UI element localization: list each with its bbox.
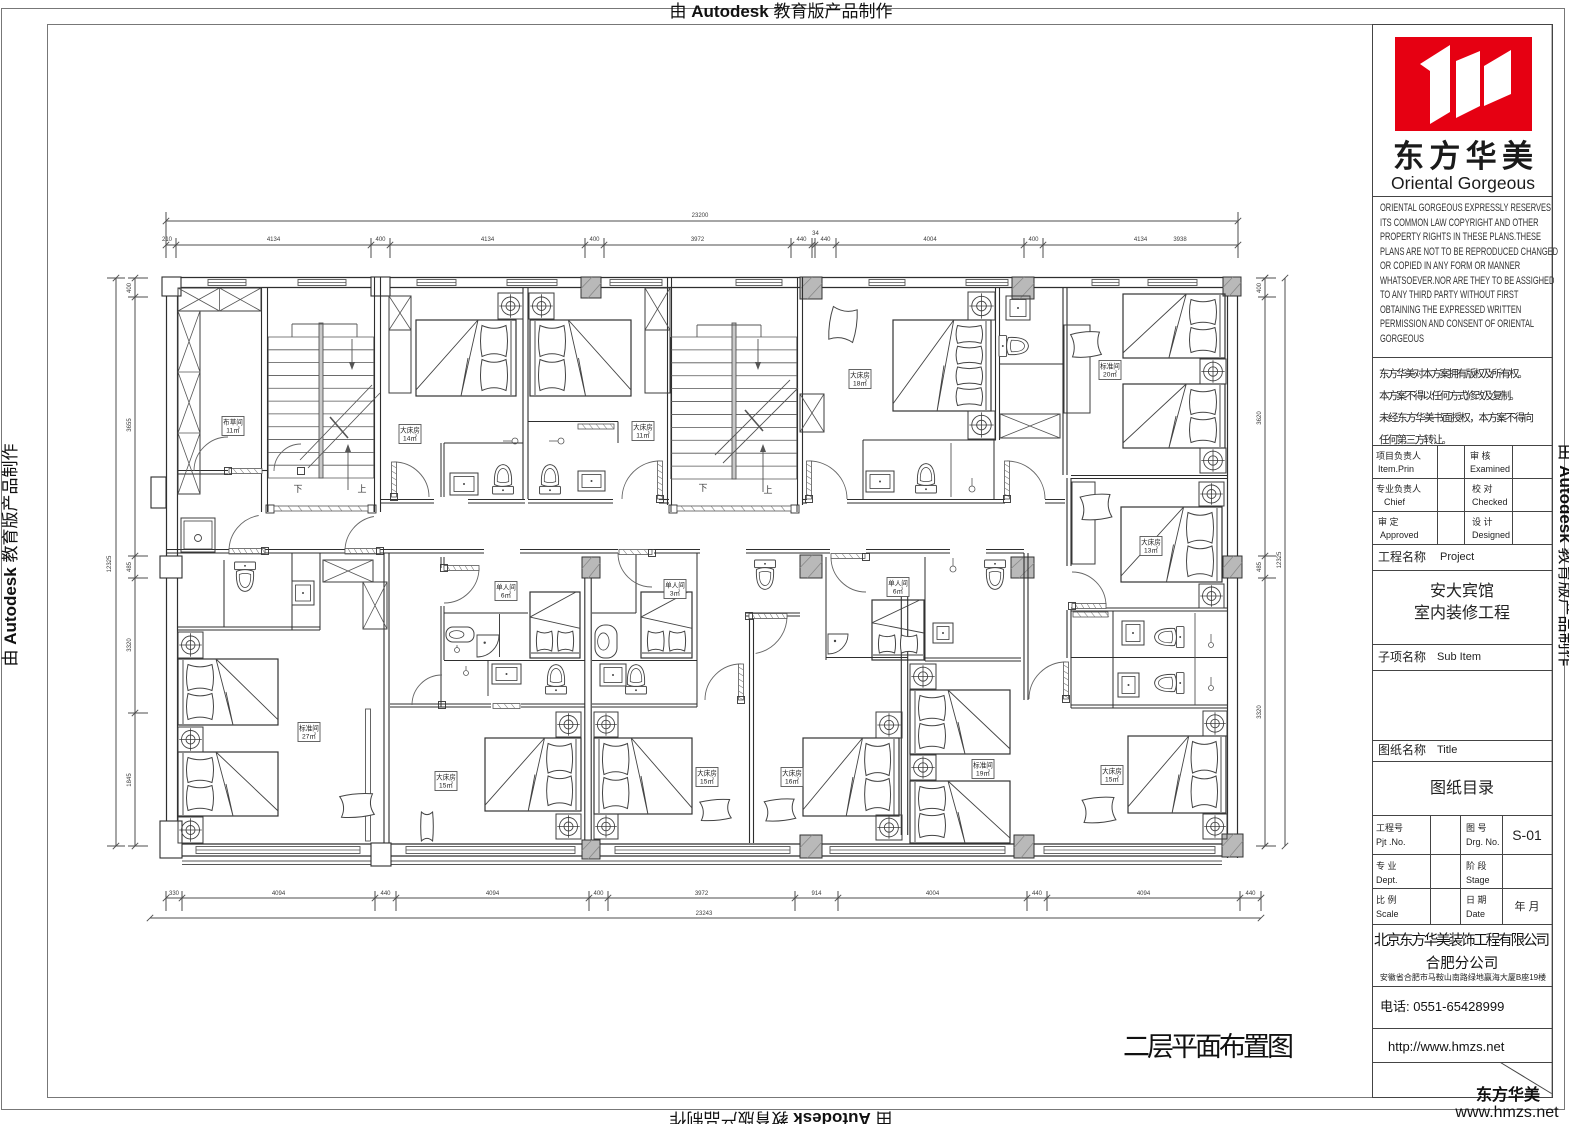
svg-text:440: 440 bbox=[820, 237, 831, 243]
svg-text:ITS COMMON LAW COPYRIGHT AND O: ITS COMMON LAW COPYRIGHT AND OTHER bbox=[1380, 215, 1539, 228]
svg-text:大床房: 大床房 bbox=[697, 769, 717, 778]
svg-text:阶 段: 阶 段 bbox=[1466, 860, 1487, 871]
svg-text:大床房: 大床房 bbox=[400, 426, 420, 435]
svg-text:日 期: 日 期 bbox=[1466, 895, 1487, 905]
svg-text:室内装修工程: 室内装修工程 bbox=[1414, 604, 1510, 622]
svg-text:审 核: 审 核 bbox=[1470, 450, 1491, 461]
svg-text:440: 440 bbox=[380, 891, 391, 897]
svg-text:大床房: 大床房 bbox=[436, 773, 456, 782]
svg-text:400: 400 bbox=[1028, 237, 1039, 243]
svg-text:大床房: 大床房 bbox=[633, 423, 653, 432]
svg-text:18㎡: 18㎡ bbox=[853, 379, 867, 388]
svg-text:Dept.: Dept. bbox=[1376, 875, 1398, 885]
svg-text:由 Autodesk 教育版产品制作: 由 Autodesk 教育版产品制作 bbox=[1, 444, 20, 667]
svg-text:210: 210 bbox=[162, 237, 173, 243]
svg-text:设 计: 设 计 bbox=[1472, 516, 1493, 527]
svg-text:27㎡: 27㎡ bbox=[302, 732, 316, 741]
svg-text:Item.Prin: Item.Prin bbox=[1378, 464, 1414, 474]
svg-text:审 定: 审 定 bbox=[1378, 516, 1399, 527]
svg-text:OBTAINING THE EXPRESSED WRITTE: OBTAINING THE EXPRESSED WRITTEN bbox=[1380, 302, 1521, 315]
svg-text:图纸目录: 图纸目录 bbox=[1430, 779, 1494, 797]
svg-text:Drg. No.: Drg. No. bbox=[1466, 837, 1500, 847]
svg-text:440: 440 bbox=[796, 237, 807, 243]
svg-text:14㎡: 14㎡ bbox=[403, 434, 417, 443]
svg-text:年 月: 年 月 bbox=[1514, 899, 1539, 913]
svg-text:PERMISSION AND CONSENT OF ORIE: PERMISSION AND CONSENT OF ORIENTAL bbox=[1380, 316, 1534, 329]
svg-text:标准间: 标准间 bbox=[973, 761, 993, 770]
svg-text:4134: 4134 bbox=[481, 237, 495, 243]
svg-text:安大宾馆: 安大宾馆 bbox=[1430, 582, 1494, 600]
svg-text:1845: 1845 bbox=[127, 773, 133, 787]
svg-text:400: 400 bbox=[593, 891, 604, 897]
svg-text:Stage: Stage bbox=[1466, 875, 1490, 885]
svg-text:12325: 12325 bbox=[1277, 551, 1283, 568]
svg-text:Oriental Gorgeous: Oriental Gorgeous bbox=[1391, 173, 1535, 193]
svg-text:12325: 12325 bbox=[107, 555, 113, 572]
svg-text:400: 400 bbox=[589, 237, 600, 243]
svg-text:Approved: Approved bbox=[1380, 530, 1419, 540]
svg-text:由 Autodesk 教育版产品制作: 由 Autodesk 教育版产品制作 bbox=[670, 1109, 893, 1124]
svg-text:914: 914 bbox=[811, 891, 822, 897]
svg-text:子项名称: 子项名称 bbox=[1378, 649, 1426, 664]
svg-text:由 Autodesk 教育版产品制作: 由 Autodesk 教育版产品制作 bbox=[1556, 444, 1569, 667]
svg-text:11㎡: 11㎡ bbox=[226, 426, 240, 435]
svg-text:北京东方华美装饰工程有限公司: 北京东方华美装饰工程有限公司 bbox=[1374, 932, 1550, 949]
svg-text:15㎡: 15㎡ bbox=[1105, 775, 1119, 784]
svg-text:专 业: 专 业 bbox=[1376, 860, 1397, 871]
svg-text:大床房: 大床房 bbox=[782, 769, 802, 778]
svg-text:PLANS ARE NOT TO BE REPRODUCED: PLANS ARE NOT TO BE REPRODUCED CHANGED bbox=[1380, 244, 1558, 257]
svg-text:3620: 3620 bbox=[1257, 411, 1263, 425]
svg-text:Project: Project bbox=[1440, 551, 1474, 563]
svg-text:由 Autodesk 教育版产品制作: 由 Autodesk 教育版产品制作 bbox=[670, 2, 893, 21]
svg-text:400: 400 bbox=[127, 282, 133, 293]
svg-text:单人间: 单人间 bbox=[665, 581, 685, 590]
svg-text:OR COPIED IN ANY FORM OR MANNE: OR COPIED IN ANY FORM OR MANNER bbox=[1380, 258, 1520, 271]
svg-text:20㎡: 20㎡ bbox=[1103, 370, 1117, 379]
svg-text:19㎡: 19㎡ bbox=[976, 769, 990, 778]
svg-text:11㎡: 11㎡ bbox=[636, 431, 650, 440]
svg-text:15㎡: 15㎡ bbox=[700, 777, 714, 786]
svg-text:二层平面布置图: 二层平面布置图 bbox=[1123, 1032, 1292, 1062]
svg-text:东方华美: 东方华美 bbox=[1476, 1085, 1541, 1104]
svg-text:比 例: 比 例 bbox=[1376, 894, 1397, 905]
svg-text:图 号: 图 号 bbox=[1466, 823, 1487, 833]
svg-text:东方华美对本方案拥有版权及所有权。: 东方华美对本方案拥有版权及所有权。 bbox=[1379, 367, 1528, 380]
svg-text:440: 440 bbox=[1245, 891, 1256, 897]
svg-text:大床房: 大床房 bbox=[1141, 538, 1161, 547]
svg-text:标准间: 标准间 bbox=[1100, 362, 1120, 371]
svg-text:工程号: 工程号 bbox=[1376, 823, 1403, 833]
svg-text:Sub Item: Sub Item bbox=[1437, 651, 1481, 663]
svg-text:3972: 3972 bbox=[691, 237, 705, 243]
svg-text:Scale: Scale bbox=[1376, 909, 1399, 919]
svg-text:400: 400 bbox=[1257, 282, 1263, 293]
svg-text:布草间: 布草间 bbox=[223, 418, 243, 427]
svg-text:3938: 3938 bbox=[1173, 237, 1187, 243]
svg-text:485: 485 bbox=[127, 561, 133, 572]
svg-text:4094: 4094 bbox=[486, 891, 500, 897]
svg-text:3㎡: 3㎡ bbox=[670, 589, 681, 598]
svg-text:3972: 3972 bbox=[695, 891, 709, 897]
svg-text:专业负责人: 专业负责人 bbox=[1376, 483, 1421, 494]
svg-text:3320: 3320 bbox=[1257, 705, 1263, 719]
svg-text:校 对: 校 对 bbox=[1472, 483, 1493, 494]
svg-text:Checked: Checked bbox=[1472, 497, 1508, 507]
svg-text:下: 下 bbox=[293, 484, 302, 494]
svg-text:TO ANY THIRD PARTY WITHOUT FIR: TO ANY THIRD PARTY WITHOUT FIRST bbox=[1380, 287, 1519, 300]
svg-text:6㎡: 6㎡ bbox=[501, 591, 512, 600]
svg-text:图纸名称: 图纸名称 bbox=[1378, 742, 1426, 757]
svg-text:http://www.hmzs.net: http://www.hmzs.net bbox=[1388, 1039, 1505, 1054]
svg-text:上: 上 bbox=[763, 485, 772, 495]
svg-text:www.hmzs.net: www.hmzs.net bbox=[1454, 1104, 1559, 1121]
svg-text:本方案不得以任何方式修改及复制。: 本方案不得以任何方式修改及复制。 bbox=[1379, 389, 1520, 402]
svg-text:电话: 0551-65428999: 电话: 0551-65428999 bbox=[1380, 999, 1504, 1014]
svg-text:4004: 4004 bbox=[923, 237, 937, 243]
svg-text:S-01: S-01 bbox=[1512, 827, 1542, 843]
svg-text:单人间: 单人间 bbox=[496, 583, 516, 592]
svg-text:23243: 23243 bbox=[696, 911, 713, 917]
svg-text:Date: Date bbox=[1466, 909, 1485, 919]
svg-text:330: 330 bbox=[169, 891, 180, 897]
svg-text:任何第三方转让。: 任何第三方转让。 bbox=[1379, 433, 1452, 446]
svg-text:上: 上 bbox=[357, 484, 366, 494]
svg-text:Examined: Examined bbox=[1470, 464, 1510, 474]
svg-text:WHATSOEVER.NOR ARE THEY TO BE: WHATSOEVER.NOR ARE THEY TO BE ASSIGHED bbox=[1380, 273, 1555, 286]
svg-text:3320: 3320 bbox=[127, 638, 133, 652]
svg-text:34: 34 bbox=[812, 231, 819, 237]
svg-text:16㎡: 16㎡ bbox=[785, 777, 799, 786]
svg-text:Chief: Chief bbox=[1384, 497, 1406, 507]
svg-text:23200: 23200 bbox=[692, 213, 709, 219]
svg-text:安徽省合肥市马鞍山南路绿地赢海大厦B座19楼: 安徽省合肥市马鞍山南路绿地赢海大厦B座19楼 bbox=[1380, 972, 1546, 982]
svg-text:4134: 4134 bbox=[1134, 237, 1148, 243]
svg-text:单人间: 单人间 bbox=[888, 579, 908, 588]
svg-text:标准间: 标准间 bbox=[299, 724, 319, 733]
svg-text:项目负责人: 项目负责人 bbox=[1376, 450, 1421, 461]
svg-text:4094: 4094 bbox=[1137, 891, 1151, 897]
svg-text:400: 400 bbox=[375, 237, 386, 243]
svg-text:大床房: 大床房 bbox=[850, 371, 870, 380]
svg-text:Designed: Designed bbox=[1472, 530, 1510, 540]
svg-text:下: 下 bbox=[698, 483, 707, 493]
svg-text:合肥分公司: 合肥分公司 bbox=[1426, 955, 1499, 972]
svg-text:工程名称: 工程名称 bbox=[1378, 549, 1426, 564]
svg-text:440: 440 bbox=[1032, 891, 1043, 897]
svg-text:大床房: 大床房 bbox=[1102, 767, 1122, 776]
svg-text:未经东方华美书面授权，本方案不得向: 未经东方华美书面授权，本方案不得向 bbox=[1379, 411, 1534, 424]
svg-text:4004: 4004 bbox=[926, 891, 940, 897]
svg-text:485: 485 bbox=[1257, 561, 1263, 572]
svg-text:15㎡: 15㎡ bbox=[439, 781, 453, 790]
svg-text:PROPERTY RIGHTS IN THESE PLANS: PROPERTY RIGHTS IN THESE PLANS.THESE bbox=[1380, 229, 1541, 242]
svg-text:13㎡: 13㎡ bbox=[1144, 546, 1158, 555]
svg-text:ORIENTAL GORGEOUS EXPRESSLY RE: ORIENTAL GORGEOUS EXPRESSLY RESERVES bbox=[1380, 200, 1551, 213]
svg-text:6㎡: 6㎡ bbox=[893, 587, 904, 596]
svg-text:4134: 4134 bbox=[267, 237, 281, 243]
svg-text:3655: 3655 bbox=[127, 418, 133, 432]
svg-text:4094: 4094 bbox=[272, 891, 286, 897]
svg-text:GORGEOUS: GORGEOUS bbox=[1380, 331, 1424, 344]
svg-text:Pjt .No.: Pjt .No. bbox=[1376, 837, 1406, 847]
svg-text:Title: Title bbox=[1437, 744, 1457, 756]
